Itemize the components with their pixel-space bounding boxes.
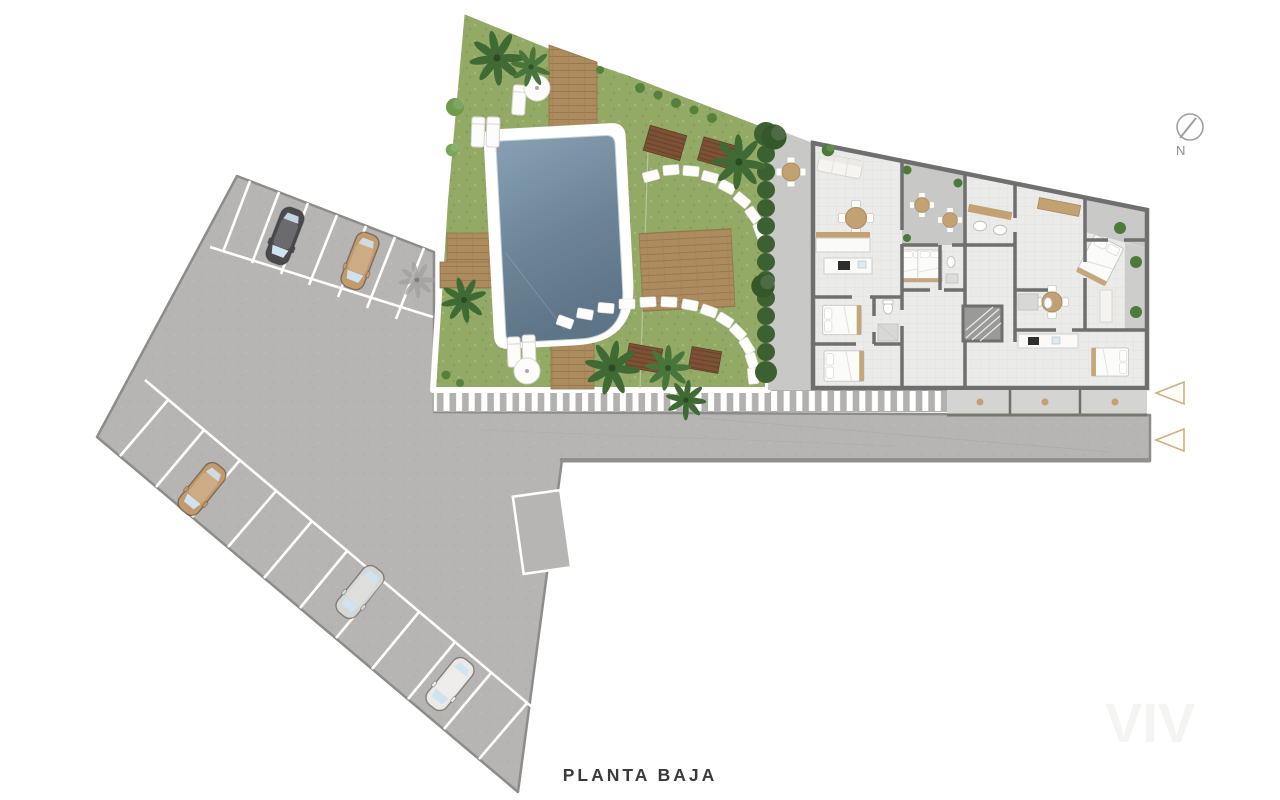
tree-icon [761, 124, 786, 149]
pergola-bench [688, 347, 721, 374]
terrace-table-small [977, 399, 984, 406]
sun-lounger [486, 117, 500, 147]
plant-pot [954, 179, 963, 188]
ground-terraces [947, 390, 1147, 416]
bed [1092, 348, 1129, 376]
entry-arrow-icon [1156, 382, 1184, 404]
north-label: N [1176, 143, 1185, 158]
stair-core [963, 306, 1002, 341]
plan-title: PLANTA BAJA [563, 765, 718, 785]
site-plan-page: N PLANTA BAJA VIV [0, 0, 1280, 800]
bush-icon [446, 144, 459, 157]
parasol-icon [514, 358, 540, 384]
bush-icon [446, 98, 464, 116]
tree-icon [751, 274, 774, 297]
bed [824, 351, 864, 381]
terrace-table-small [1042, 399, 1049, 406]
plant-pot [903, 234, 911, 242]
plant-pot [903, 166, 912, 175]
sun-lounger [471, 117, 485, 147]
watermark: VIV [1105, 691, 1195, 754]
ground-floor-plan: N PLANTA BAJA VIV [0, 0, 1280, 800]
apartment-building [813, 143, 1147, 388]
bush-icon [822, 144, 835, 157]
entry-arrow-icon [1156, 429, 1184, 451]
sofa-right [1100, 290, 1112, 322]
balcony-plant [1130, 306, 1142, 318]
entry-arrows [1156, 382, 1184, 451]
terrace-table-small [1112, 399, 1119, 406]
patio [754, 122, 813, 390]
kitchen-right [1018, 334, 1078, 348]
compass-needle-icon [1180, 118, 1196, 138]
balcony-plant [1114, 222, 1126, 234]
road-curb [560, 458, 1150, 463]
balcony-plant [1130, 256, 1142, 268]
marked-parking-bay [513, 490, 571, 574]
north-compass: N [1176, 114, 1203, 158]
bed [823, 305, 862, 334]
